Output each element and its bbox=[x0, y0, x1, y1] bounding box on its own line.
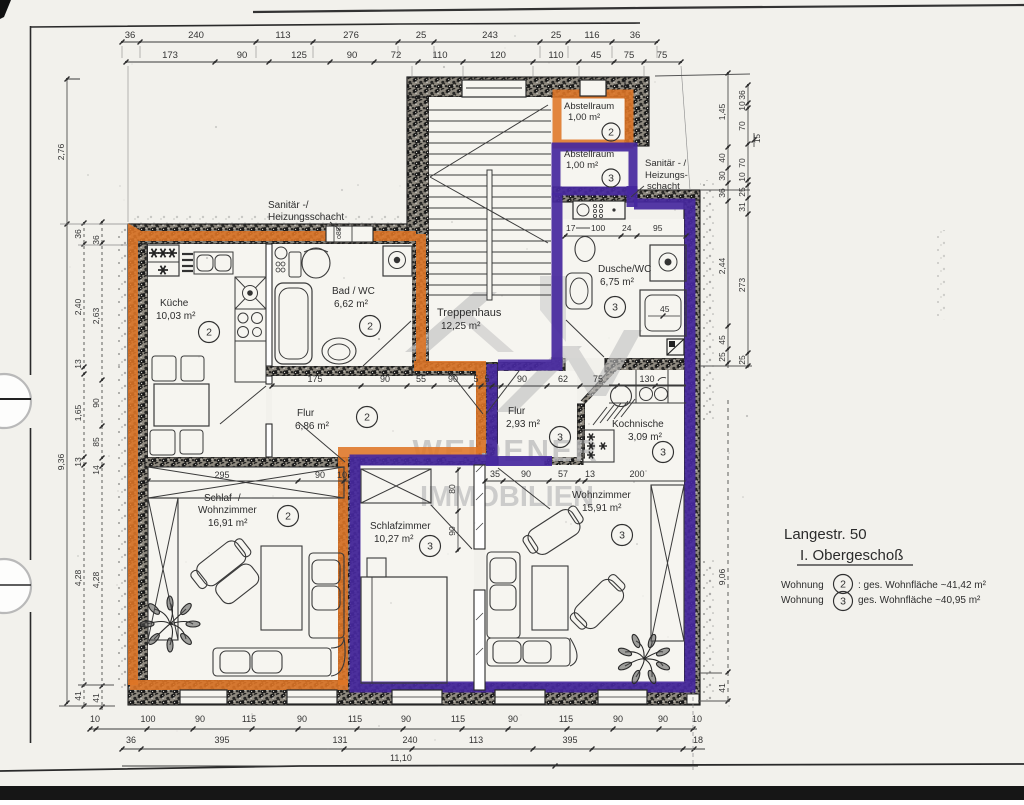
svg-text:113: 113 bbox=[275, 30, 290, 41]
svg-text:17: 17 bbox=[566, 223, 576, 233]
svg-text:3: 3 bbox=[612, 302, 618, 314]
svg-text:35: 35 bbox=[490, 469, 500, 479]
svg-text:36: 36 bbox=[73, 229, 83, 239]
svg-text:200: 200 bbox=[629, 469, 644, 479]
svg-text:90: 90 bbox=[447, 526, 457, 536]
svg-text:Küche: Küche bbox=[160, 298, 189, 309]
svg-text:4,28: 4,28 bbox=[91, 571, 101, 588]
svg-text:Treppenhaus: Treppenhaus bbox=[437, 307, 502, 319]
svg-text:90: 90 bbox=[517, 374, 527, 384]
svg-text:395: 395 bbox=[562, 735, 577, 745]
svg-text:Langestr. 50: Langestr. 50 bbox=[784, 526, 867, 543]
svg-text:36: 36 bbox=[717, 188, 727, 198]
svg-text:175: 175 bbox=[307, 374, 322, 384]
svg-text:3: 3 bbox=[427, 541, 433, 553]
svg-text:24: 24 bbox=[622, 223, 632, 233]
svg-text:115: 115 bbox=[559, 714, 573, 724]
svg-text:Abstellraum: Abstellraum bbox=[564, 101, 614, 112]
svg-text:I. Obergeschoß: I. Obergeschoß bbox=[800, 547, 903, 564]
svg-text:2,76: 2,76 bbox=[56, 143, 66, 160]
svg-text:25: 25 bbox=[551, 30, 562, 41]
svg-text:10: 10 bbox=[737, 172, 747, 182]
svg-text:173: 173 bbox=[162, 50, 178, 61]
svg-text:10: 10 bbox=[337, 470, 347, 480]
svg-text:100: 100 bbox=[140, 714, 155, 724]
svg-text:2: 2 bbox=[608, 127, 614, 139]
svg-text:4,28: 4,28 bbox=[73, 569, 83, 586]
svg-text:3: 3 bbox=[619, 530, 625, 542]
svg-text:40: 40 bbox=[717, 153, 727, 163]
svg-text:Heizungs-: Heizungs- bbox=[645, 170, 688, 181]
svg-text:113: 113 bbox=[469, 735, 483, 745]
svg-text:9,06: 9,06 bbox=[717, 568, 727, 585]
svg-text:90: 90 bbox=[613, 714, 623, 724]
svg-text:6,86 m²: 6,86 m² bbox=[295, 421, 330, 432]
svg-text:31: 31 bbox=[737, 202, 747, 212]
svg-text:o88: o88 bbox=[336, 227, 343, 239]
svg-text:25: 25 bbox=[737, 355, 747, 365]
svg-text:115: 115 bbox=[348, 714, 362, 724]
svg-text:80: 80 bbox=[447, 484, 457, 494]
svg-text:Wohnung: Wohnung bbox=[781, 580, 824, 591]
svg-text:Dusche/WC: Dusche/WC bbox=[598, 264, 651, 275]
svg-text:90: 90 bbox=[380, 374, 390, 384]
svg-text:Wohnung: Wohnung bbox=[781, 595, 824, 606]
svg-text:2: 2 bbox=[367, 321, 373, 333]
svg-text:70: 70 bbox=[737, 158, 747, 168]
svg-text:18: 18 bbox=[693, 735, 703, 745]
svg-text:schacht: schacht bbox=[647, 181, 680, 192]
svg-text:6,75 m²: 6,75 m² bbox=[600, 277, 635, 288]
svg-text:90: 90 bbox=[91, 398, 101, 408]
svg-text:Kochnische: Kochnische bbox=[612, 419, 664, 430]
svg-text:90: 90 bbox=[508, 714, 518, 724]
svg-text:240: 240 bbox=[188, 30, 204, 41]
svg-text:10,27 m²: 10,27 m² bbox=[374, 534, 414, 545]
svg-text:2: 2 bbox=[840, 579, 846, 591]
svg-text:Wohnzimmer: Wohnzimmer bbox=[572, 490, 631, 501]
svg-text:Bad / WC: Bad / WC bbox=[332, 286, 375, 297]
svg-text:2: 2 bbox=[206, 327, 212, 339]
svg-text:45: 45 bbox=[717, 335, 727, 345]
svg-text:70: 70 bbox=[737, 121, 747, 131]
svg-text:95: 95 bbox=[653, 223, 663, 233]
svg-text:10,03 m²: 10,03 m² bbox=[156, 311, 196, 322]
svg-text:10: 10 bbox=[692, 714, 702, 724]
svg-text:115: 115 bbox=[451, 714, 465, 724]
svg-text:11,10: 11,10 bbox=[390, 753, 412, 763]
svg-text:Schlaf -/: Schlaf -/ bbox=[204, 493, 241, 504]
svg-text:Sanitär - /: Sanitär - / bbox=[645, 158, 687, 169]
svg-text:90: 90 bbox=[315, 470, 325, 480]
svg-text:Sanitär -/: Sanitär -/ bbox=[268, 200, 309, 211]
svg-text:2: 2 bbox=[285, 511, 291, 523]
svg-text:1,00 m²: 1,00 m² bbox=[566, 160, 598, 171]
svg-text:72: 72 bbox=[391, 50, 402, 61]
svg-text:131: 131 bbox=[332, 735, 347, 745]
svg-text:Flur: Flur bbox=[297, 408, 315, 419]
svg-text:36: 36 bbox=[91, 235, 101, 245]
svg-text:3,09 m²: 3,09 m² bbox=[628, 432, 663, 443]
svg-text:Schlafzimmer: Schlafzimmer bbox=[370, 521, 431, 532]
svg-text:15: 15 bbox=[753, 134, 762, 143]
svg-text:10: 10 bbox=[737, 101, 747, 111]
svg-text:30: 30 bbox=[717, 171, 727, 181]
svg-text:55: 55 bbox=[416, 374, 426, 384]
svg-text:5: 5 bbox=[473, 374, 478, 384]
svg-text:9,36: 9,36 bbox=[56, 453, 66, 470]
svg-text:2,63: 2,63 bbox=[91, 307, 101, 324]
svg-text:16,91 m²: 16,91 m² bbox=[208, 518, 248, 529]
svg-text:36: 36 bbox=[126, 735, 136, 745]
svg-text:276: 276 bbox=[343, 30, 359, 41]
svg-text:2,40: 2,40 bbox=[73, 298, 83, 315]
svg-text:5: 5 bbox=[484, 374, 489, 384]
svg-text:75: 75 bbox=[657, 50, 668, 61]
svg-text:110: 110 bbox=[432, 50, 447, 61]
svg-text:ges. Wohnfläche ~40,95 m²: ges. Wohnfläche ~40,95 m² bbox=[858, 595, 981, 606]
svg-text:116: 116 bbox=[584, 30, 599, 41]
svg-text:100: 100 bbox=[591, 223, 605, 233]
svg-text:395: 395 bbox=[214, 735, 229, 745]
svg-text:3: 3 bbox=[557, 432, 563, 444]
svg-text:25: 25 bbox=[416, 30, 427, 41]
svg-text:3: 3 bbox=[840, 596, 846, 608]
svg-text:25: 25 bbox=[737, 187, 747, 197]
svg-text:75: 75 bbox=[593, 374, 603, 384]
svg-text:1,65: 1,65 bbox=[73, 404, 83, 421]
svg-text:Flur: Flur bbox=[508, 406, 526, 417]
svg-text:45: 45 bbox=[660, 304, 670, 314]
svg-text:125: 125 bbox=[291, 50, 307, 61]
svg-text:13: 13 bbox=[585, 469, 595, 479]
svg-text:45: 45 bbox=[591, 50, 602, 61]
svg-text:85: 85 bbox=[91, 437, 101, 447]
svg-text:75: 75 bbox=[624, 50, 635, 61]
svg-text:2: 2 bbox=[364, 412, 370, 424]
svg-text:273: 273 bbox=[737, 278, 747, 292]
svg-text:36: 36 bbox=[630, 30, 641, 41]
svg-text:295: 295 bbox=[214, 470, 229, 480]
svg-text:13: 13 bbox=[73, 457, 83, 467]
svg-text:90: 90 bbox=[237, 50, 248, 61]
svg-text:243: 243 bbox=[482, 30, 498, 41]
svg-text:Abstellraum: Abstellraum bbox=[564, 149, 614, 160]
svg-text:90: 90 bbox=[347, 50, 358, 61]
svg-text:6,62 m²: 6,62 m² bbox=[334, 299, 369, 310]
svg-text:90: 90 bbox=[297, 714, 307, 724]
svg-text:25: 25 bbox=[717, 352, 727, 362]
svg-text:14: 14 bbox=[91, 465, 101, 475]
svg-text:2,93 m²: 2,93 m² bbox=[506, 419, 541, 430]
svg-text:90: 90 bbox=[195, 714, 205, 724]
svg-text:62: 62 bbox=[558, 374, 568, 384]
svg-text:36: 36 bbox=[125, 30, 136, 41]
svg-text:90: 90 bbox=[521, 469, 531, 479]
svg-text:10: 10 bbox=[90, 714, 100, 724]
svg-text:120: 120 bbox=[490, 50, 506, 61]
svg-text:41: 41 bbox=[91, 693, 101, 703]
svg-text:3: 3 bbox=[660, 447, 666, 459]
svg-text:110: 110 bbox=[548, 50, 563, 61]
svg-text:: ges. Wohnfläche ~41,42 m²: : ges. Wohnfläche ~41,42 m² bbox=[858, 580, 987, 591]
svg-text:2,44: 2,44 bbox=[717, 257, 727, 274]
svg-text:41: 41 bbox=[717, 683, 727, 693]
svg-text:3: 3 bbox=[608, 173, 614, 185]
svg-text:13: 13 bbox=[73, 359, 83, 369]
svg-text:41: 41 bbox=[73, 691, 83, 701]
svg-text:90: 90 bbox=[658, 714, 668, 724]
svg-text:1,45: 1,45 bbox=[717, 103, 727, 120]
svg-text:12,25 m²: 12,25 m² bbox=[441, 321, 481, 332]
svg-text:115: 115 bbox=[242, 714, 256, 724]
svg-text:130: 130 bbox=[639, 374, 654, 384]
svg-text:15,91 m²: 15,91 m² bbox=[582, 503, 622, 514]
svg-text:1,00 m²: 1,00 m² bbox=[568, 112, 600, 123]
svg-text:57: 57 bbox=[558, 469, 568, 479]
svg-text:240: 240 bbox=[402, 735, 417, 745]
svg-text:90: 90 bbox=[401, 714, 411, 724]
svg-text:36: 36 bbox=[737, 90, 747, 100]
svg-text:Wohnzimmer: Wohnzimmer bbox=[198, 505, 257, 516]
